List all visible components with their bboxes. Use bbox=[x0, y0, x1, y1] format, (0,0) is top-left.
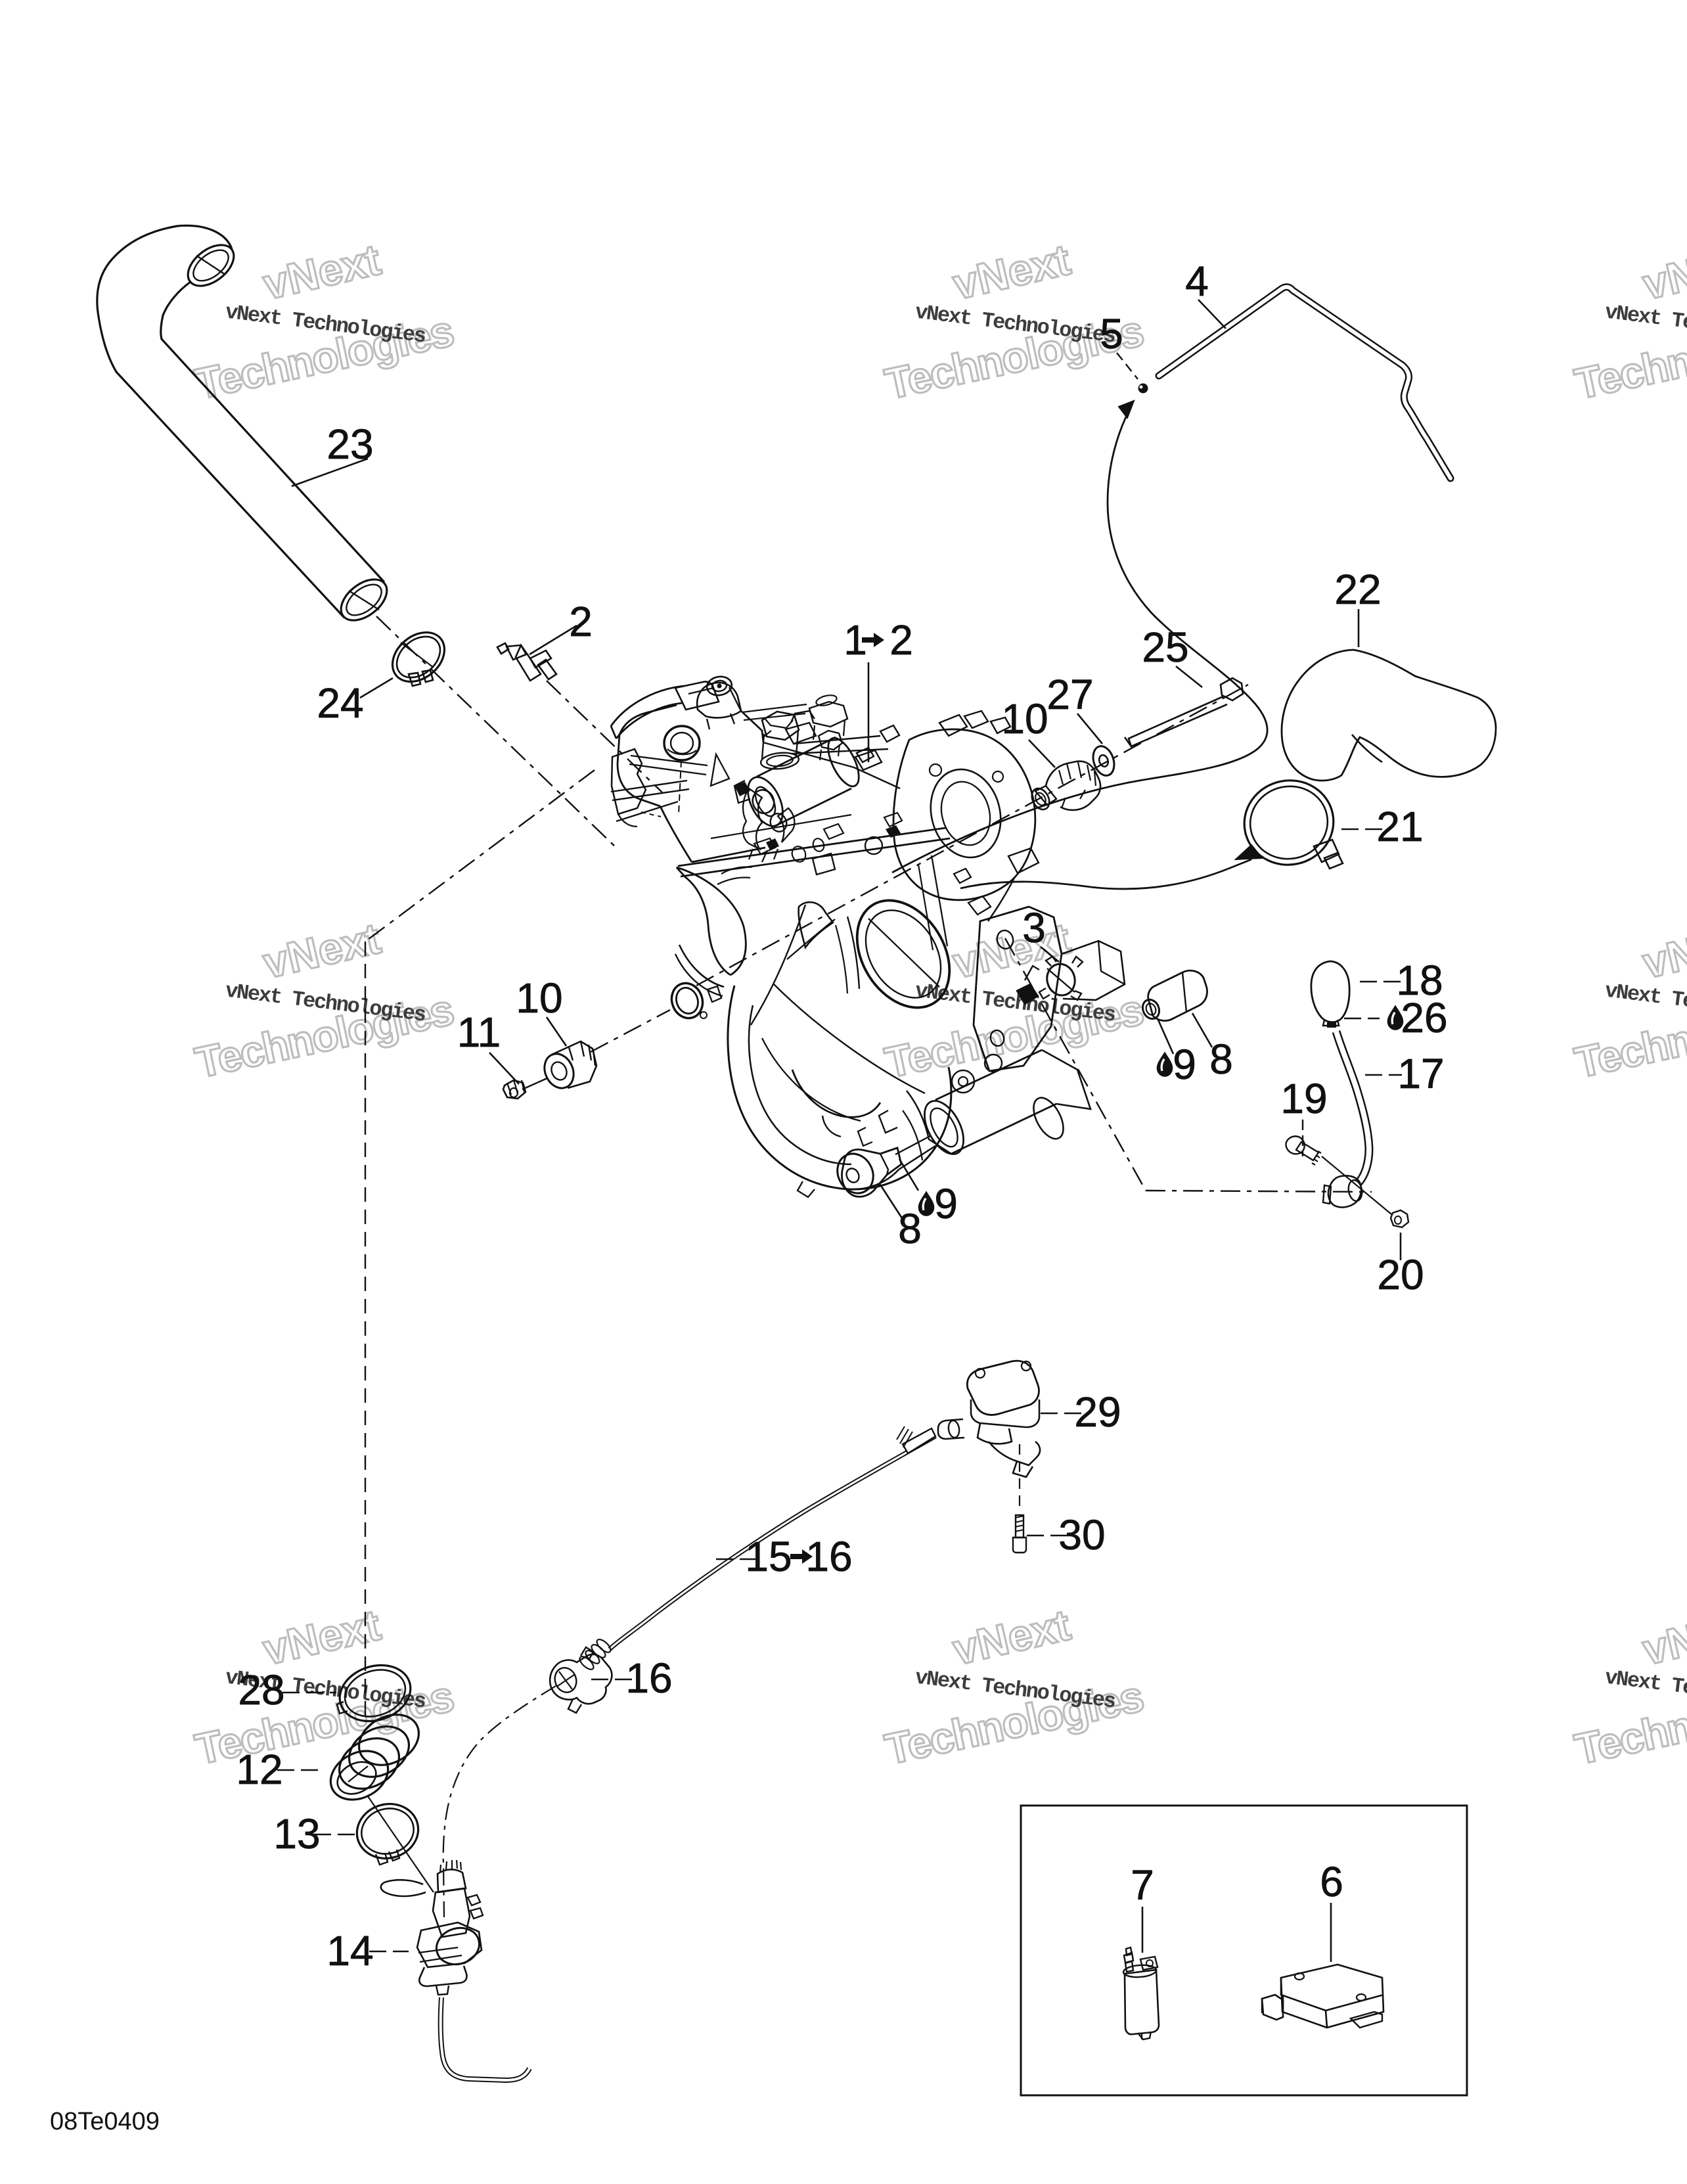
svg-text:11: 11 bbox=[457, 1009, 501, 1056]
svg-text:10: 10 bbox=[516, 974, 562, 1022]
svg-text:26: 26 bbox=[1401, 994, 1447, 1041]
svg-text:25: 25 bbox=[1142, 624, 1188, 671]
svg-text:8: 8 bbox=[1209, 1035, 1233, 1083]
svg-text:9: 9 bbox=[1173, 1041, 1196, 1088]
svg-text:08Te0409: 08Te0409 bbox=[50, 2108, 160, 2135]
svg-text:16: 16 bbox=[625, 1654, 672, 1702]
svg-text:21: 21 bbox=[1376, 803, 1423, 850]
svg-text:16: 16 bbox=[805, 1533, 852, 1580]
svg-text:23: 23 bbox=[326, 421, 373, 468]
svg-text:3: 3 bbox=[1022, 904, 1046, 951]
svg-text:10: 10 bbox=[1001, 695, 1048, 742]
svg-text:19: 19 bbox=[1280, 1075, 1327, 1122]
svg-text:28: 28 bbox=[238, 1666, 284, 1714]
svg-text:9: 9 bbox=[934, 1180, 958, 1227]
svg-text:27: 27 bbox=[1046, 671, 1093, 718]
svg-text:22: 22 bbox=[1334, 566, 1381, 613]
svg-text:5: 5 bbox=[1100, 310, 1123, 357]
svg-text:2: 2 bbox=[889, 616, 913, 664]
svg-text:13: 13 bbox=[273, 1810, 320, 1857]
svg-text:15: 15 bbox=[745, 1533, 792, 1580]
svg-text:2: 2 bbox=[569, 598, 593, 645]
svg-text:8: 8 bbox=[898, 1205, 922, 1252]
svg-text:24: 24 bbox=[317, 679, 363, 727]
svg-text:7: 7 bbox=[1131, 1861, 1154, 1909]
svg-text:4: 4 bbox=[1185, 258, 1209, 305]
svg-text:6: 6 bbox=[1320, 1858, 1343, 1905]
svg-text:17: 17 bbox=[1397, 1050, 1444, 1097]
svg-text:14: 14 bbox=[326, 1927, 373, 1974]
svg-text:29: 29 bbox=[1074, 1388, 1121, 1436]
svg-text:12: 12 bbox=[236, 1746, 282, 1793]
svg-text:20: 20 bbox=[1377, 1251, 1424, 1298]
svg-text:30: 30 bbox=[1058, 1511, 1105, 1558]
